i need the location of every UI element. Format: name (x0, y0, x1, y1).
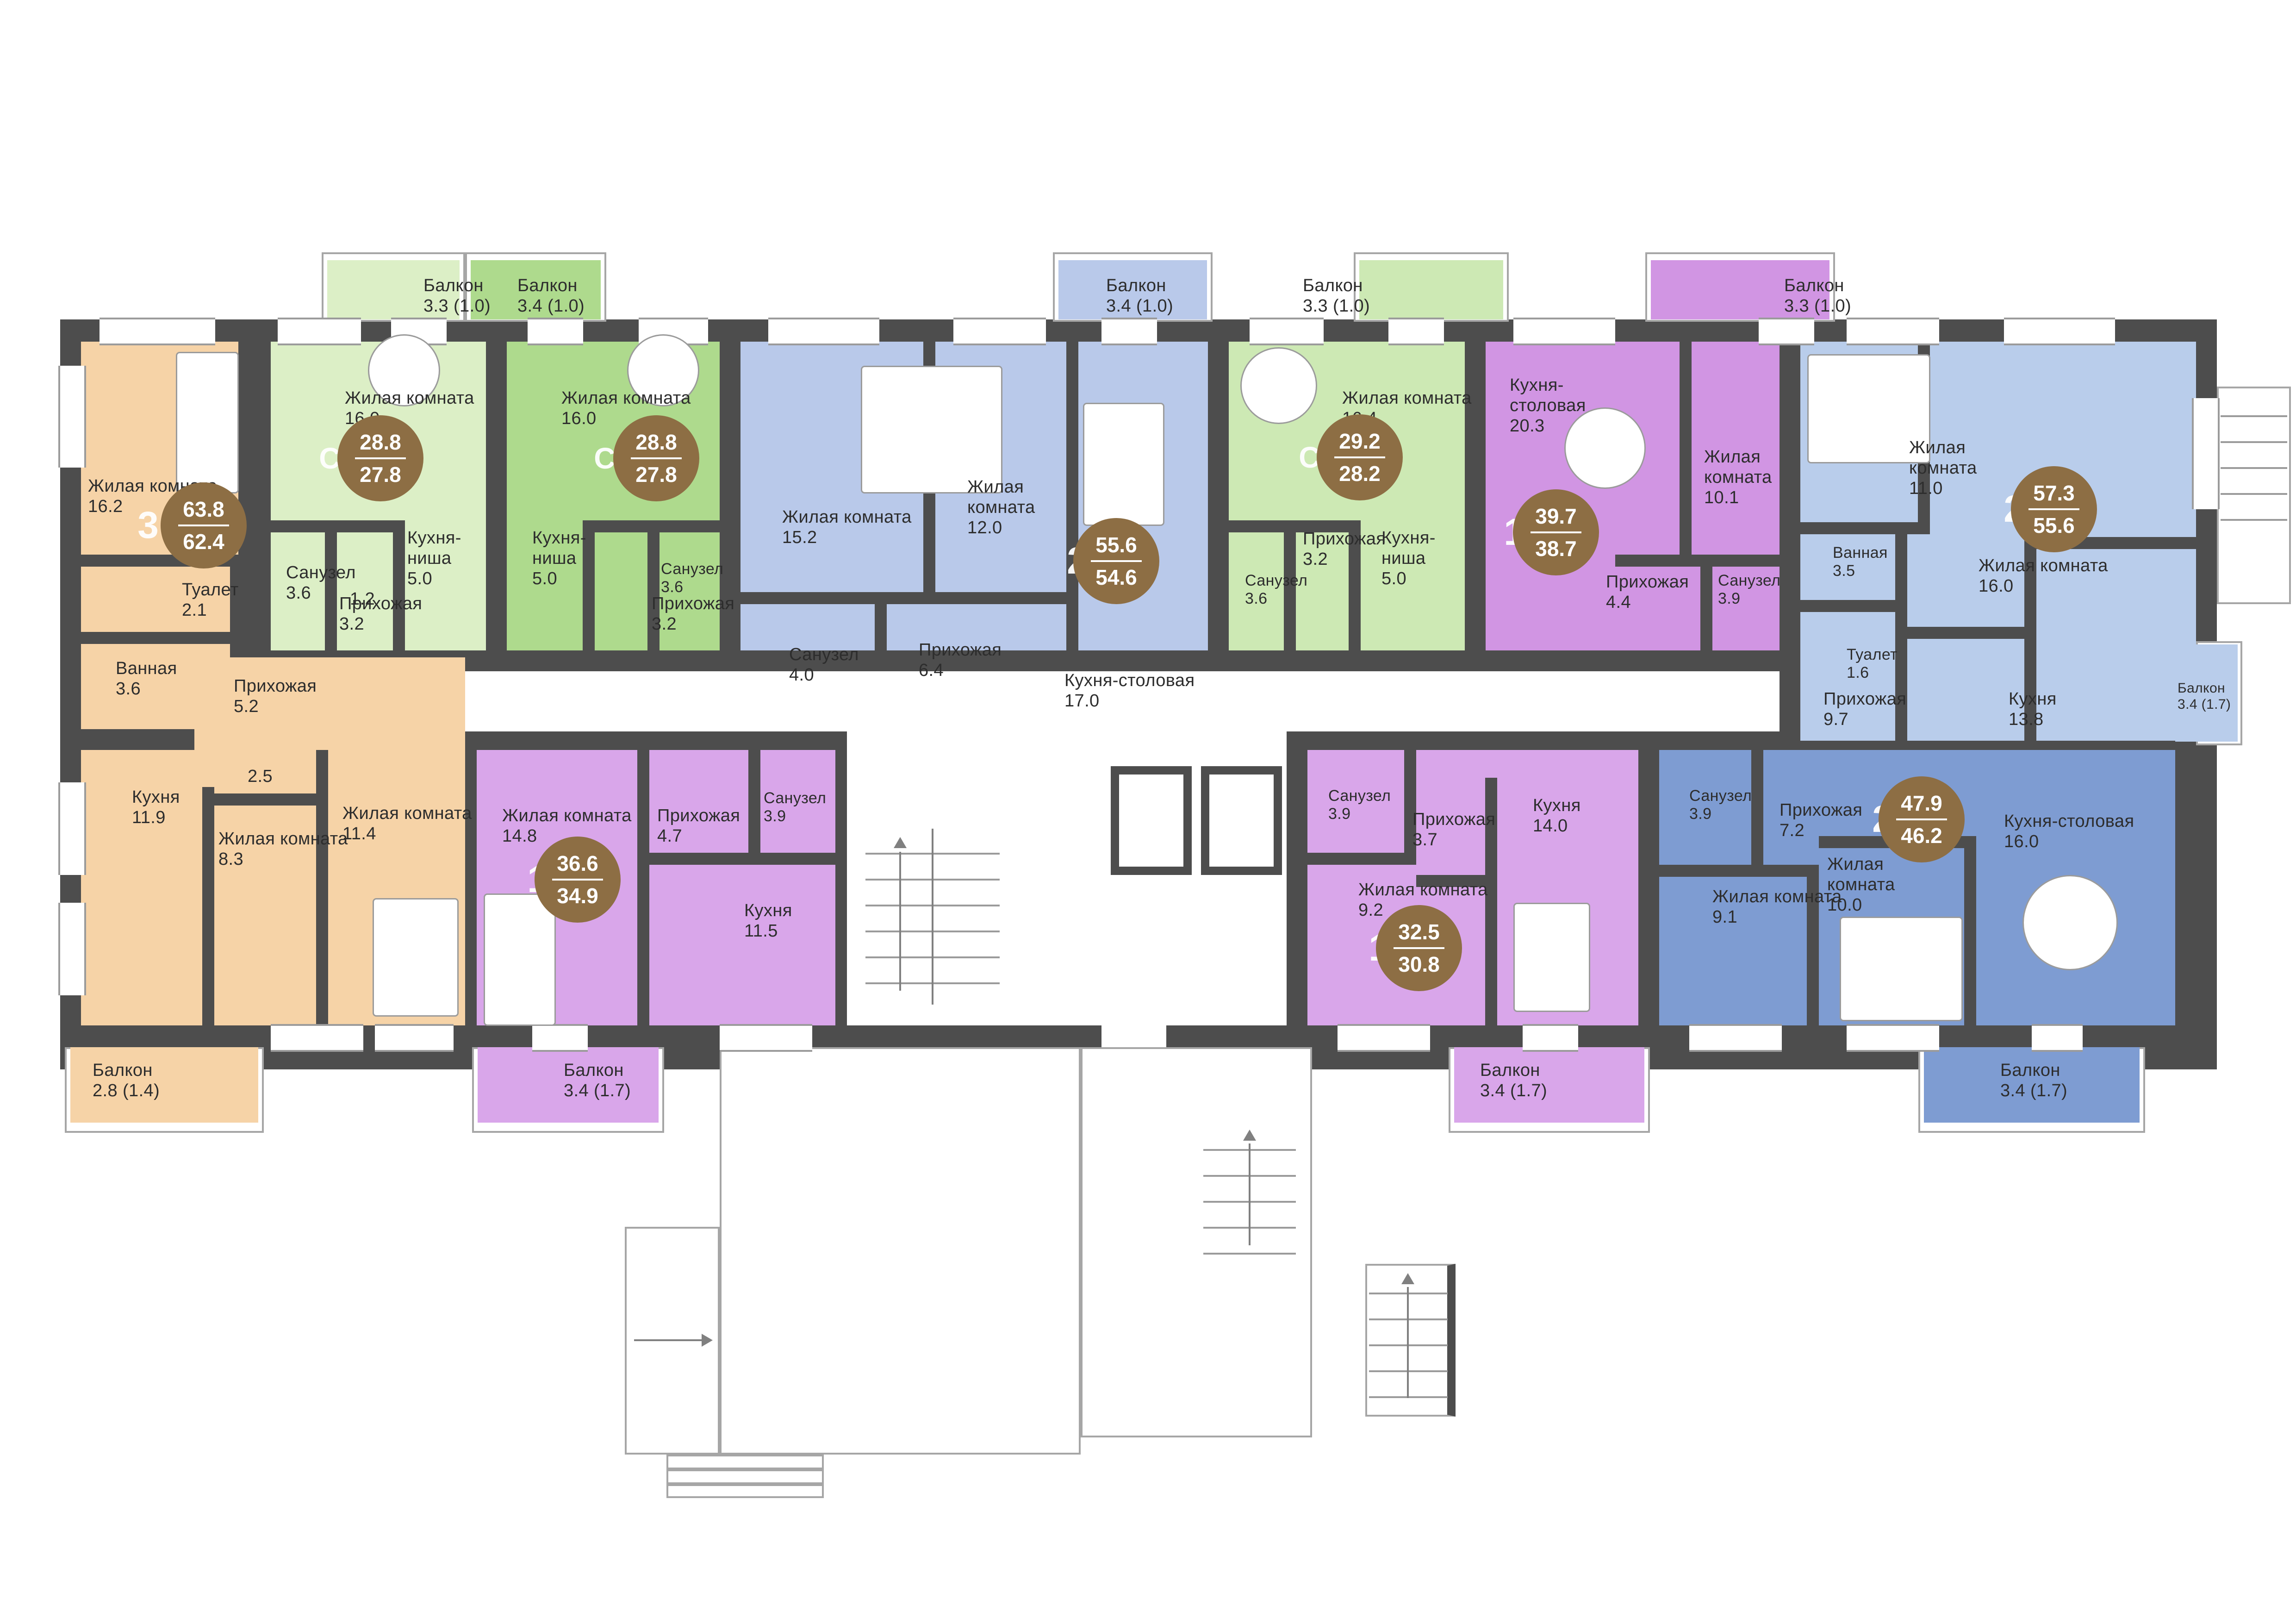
room-label: Кухня-ниша5.0 (1381, 528, 1462, 589)
apartment-area-badge[interactable]: 39.738.7 (1513, 489, 1599, 575)
room-label: Прихожая4.4 (1606, 572, 1689, 612)
balcony-door (1101, 318, 1157, 345)
wall (1751, 750, 1763, 877)
elevator-shaft (1111, 766, 1192, 875)
stair-arrow-line (1249, 1143, 1251, 1245)
window (1847, 318, 1939, 345)
apartment-area-badge[interactable]: 29.228.2 (1317, 414, 1403, 500)
stair-arrow-line (1407, 1287, 1409, 1398)
room-label: Кухня11.9 (132, 787, 180, 828)
room-label: Балкон3.3 (1.0) (1303, 275, 1370, 316)
wall (214, 793, 316, 806)
wall (81, 632, 238, 644)
room-label: Санузел3.9 (1718, 572, 1780, 608)
balcony-door (1388, 318, 1444, 345)
apartment-area-badge[interactable]: 47.946.2 (1879, 776, 1965, 862)
balcony-29-2 (1359, 260, 1503, 319)
room-label: Жилая комната10.1 (1704, 447, 1780, 508)
wall (1615, 555, 1780, 567)
stair-arrow-icon (1401, 1273, 1414, 1284)
bed (1840, 917, 1963, 1021)
room-label: Жилая комната11.4 (342, 803, 472, 844)
room-label: Балкон3.3 (1.0) (1784, 275, 1851, 316)
wall (1907, 627, 2024, 639)
room-label: Жилая комната8.3 (218, 829, 348, 869)
room-label: Прихожая6.4 (919, 640, 1002, 681)
apartment-type: 3 (137, 504, 159, 547)
room-label: Туалет2.1 (182, 580, 239, 620)
window (1250, 318, 1324, 345)
room-label: Ванная3.6 (116, 658, 177, 699)
window (58, 903, 86, 995)
room-label: Жилая комната10.0 (1827, 854, 1904, 915)
stair-direction-line (932, 829, 933, 1005)
window (2004, 318, 2115, 345)
room-label: Балкон3.4 (1.7) (564, 1060, 631, 1101)
room-label: Прихожая3.2 (652, 593, 734, 634)
stair-arrow-icon (1243, 1130, 1256, 1141)
room-label: Кухня-столовая20.3 (1510, 375, 1600, 436)
room-label: Кухня13.8 (2009, 689, 2057, 730)
balcony-door (528, 318, 583, 345)
apartment-area-badge[interactable]: 28.827.8 (613, 415, 699, 501)
table (2022, 875, 2118, 970)
room-label: Санузел3.9 (764, 789, 826, 826)
wall (1800, 522, 1930, 534)
exterior-stairs (2221, 391, 2287, 525)
wall (1964, 836, 1976, 1025)
apartment-area-badge[interactable]: 32.530.8 (1376, 905, 1462, 991)
window (1847, 1024, 1939, 1052)
room-label: Кухня-ниша5.0 (532, 528, 613, 589)
wall (649, 853, 835, 865)
window (1689, 1024, 1782, 1052)
wall (637, 750, 649, 1025)
room-label: Санузел3.6 (1245, 572, 1307, 608)
apartment-area-badge[interactable]: 57.355.6 (2011, 466, 2097, 552)
wall (740, 592, 1078, 604)
balcony-door (1759, 318, 1814, 345)
window (768, 318, 879, 345)
entrance-door-gap (1101, 1025, 1166, 1049)
wall (1680, 342, 1692, 555)
room-label: Балкон3.4 (1.7) (2000, 1060, 2067, 1101)
room-label: Жилая комната16.0 (1979, 556, 2108, 596)
kitchen-table (1083, 403, 1164, 526)
wall (875, 604, 887, 650)
balcony-door (2032, 1024, 2083, 1052)
balcony-door (1523, 1024, 1578, 1052)
window (2192, 398, 2220, 509)
room-label: Балкон3.3 (1.0) (423, 275, 491, 316)
room-label: Прихожая9.7 (1823, 689, 1906, 730)
apartment-area-badge[interactable]: 63.862.4 (161, 482, 247, 568)
bed (861, 366, 1002, 493)
wall (271, 520, 405, 532)
wall (748, 750, 760, 853)
apartment-area-badge[interactable]: 28.827.8 (337, 415, 423, 501)
room-label: Прихожая3.2 (339, 593, 422, 634)
wall (1659, 865, 1819, 877)
room-label: Прихожая3.2 (1303, 529, 1386, 569)
apartment-area-badge[interactable]: 55.654.6 (1073, 518, 1159, 604)
balcony-door (532, 1024, 588, 1052)
bed (373, 898, 459, 1017)
room-label: Жилая комната15.2 (782, 507, 912, 548)
sofa (176, 352, 239, 493)
window (58, 782, 86, 875)
window (375, 1024, 454, 1052)
room-label: Прихожая7.2 (1780, 800, 1862, 841)
room-label: Жилая комната9.1 (1712, 887, 1842, 927)
window (953, 318, 1046, 345)
window (58, 366, 86, 468)
elevator-shaft (1201, 766, 1282, 875)
window (1338, 1024, 1430, 1052)
room-label: Санузел3.9 (1689, 787, 1752, 824)
entrance-steps (666, 1469, 824, 1484)
wall (316, 750, 328, 1025)
kitchen-table (1513, 903, 1590, 1012)
room-label: Кухня-ниша5.0 (407, 528, 488, 589)
room-label: Кухня11.5 (744, 900, 792, 941)
entrance-steps (666, 1484, 824, 1498)
room-label: Санузел3.6 (661, 560, 723, 597)
entrance-arrow-line (634, 1339, 703, 1341)
room-label: Прихожая3.7 (1412, 809, 1495, 850)
room-label: 2.5 (248, 766, 273, 787)
room-label: Балкон3.4 (1.0) (517, 275, 585, 316)
sofa (484, 893, 556, 1026)
room-label: Ванная3.5 (1833, 544, 1888, 581)
stair-arrow-icon (894, 837, 907, 848)
window (1513, 318, 1615, 345)
wall (1307, 853, 1416, 865)
window (100, 318, 215, 345)
stair-arrow-line (899, 852, 901, 991)
entrance-hall (720, 1047, 1081, 1455)
window (271, 1024, 363, 1052)
floor-plan: Жилая комната16.2 Туалет2.1 1.2 Ванная3.… (0, 0, 2296, 1624)
window (278, 318, 361, 345)
room-label: Прихожая5.2 (234, 676, 317, 717)
room-label: Балкон3.4 (1.0) (1106, 275, 1173, 316)
entrance-steps (666, 1455, 824, 1469)
room-label: Санузел3.9 (1328, 787, 1391, 824)
room-label: Кухня-столовая17.0 (1064, 670, 1195, 711)
apartment-area-badge[interactable]: 36.634.9 (535, 837, 621, 923)
wall (1700, 567, 1712, 650)
room-label: Балкон2.8 (1.4) (93, 1060, 160, 1101)
room-label: Кухня-столовая16.0 (2004, 811, 2134, 852)
room-label: Санузел4.0 (789, 644, 859, 685)
room-label: Кухня14.0 (1533, 795, 1581, 836)
room-label: Балкон3.4 (1.7) (1480, 1060, 1547, 1101)
wall (1800, 600, 1895, 612)
room-label: Туалет1.6 (1847, 646, 1898, 682)
wall (202, 787, 214, 1025)
entrance-arrow-icon (702, 1334, 713, 1347)
window (720, 1024, 812, 1052)
room-label: Жилая комната11.0 (1909, 437, 1985, 499)
room-label: Балкон3.4 (1.7) (2178, 681, 2231, 713)
room-label: Прихожая4.7 (657, 806, 740, 846)
table (1240, 347, 1317, 424)
room-label: Жилая комната12.0 (967, 477, 1044, 538)
